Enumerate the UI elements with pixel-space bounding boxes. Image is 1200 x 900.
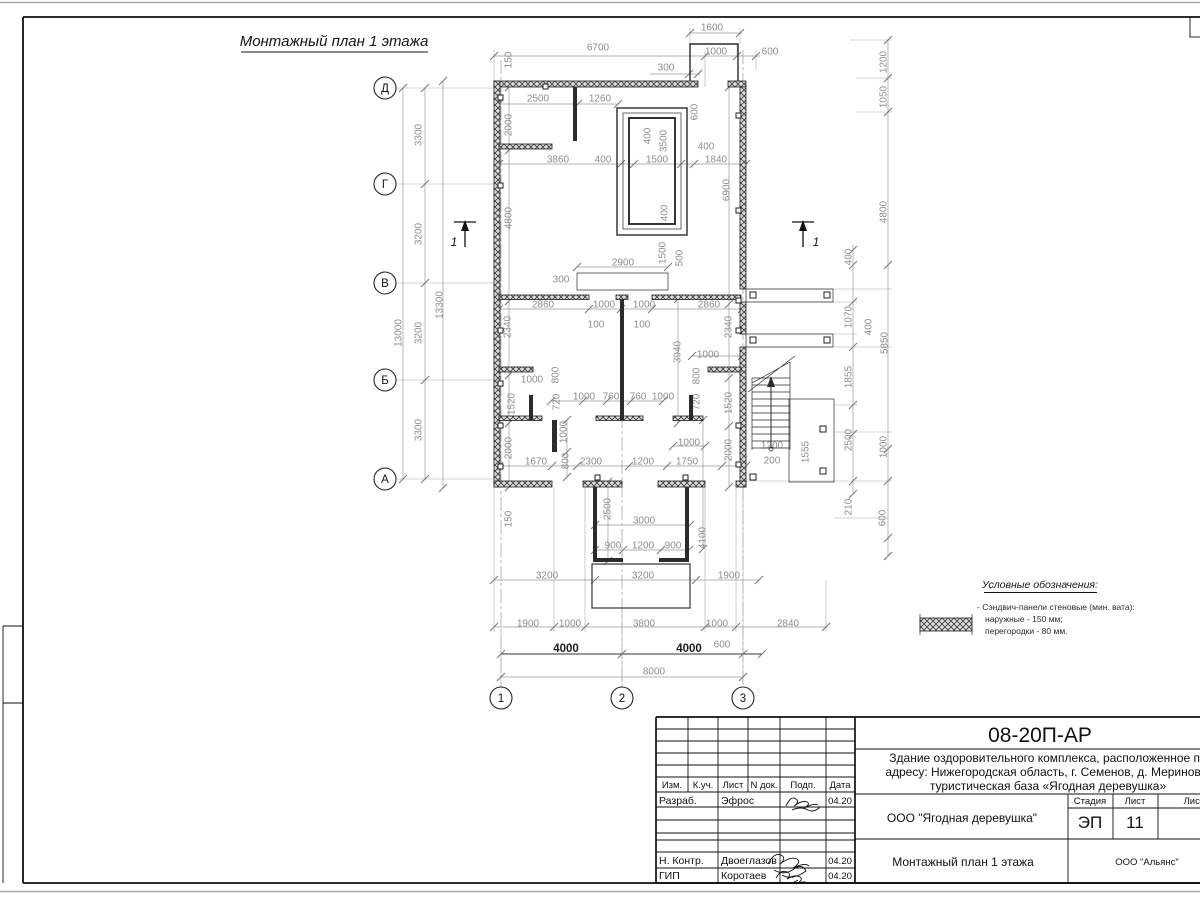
dimension-label: 13300 (435, 291, 446, 319)
axis-bubble-label: Б (381, 375, 389, 387)
dimension-label: 1000 (697, 350, 720, 361)
dimension-label: 1000 (559, 619, 582, 630)
dimension-label: 2340 (724, 315, 735, 338)
tb-stage-label: Стадия (1074, 796, 1106, 807)
axis-bubble-label: 2 (619, 693, 625, 705)
dimension-label: 1000 (559, 420, 570, 443)
axis-bubble-label: 1 (498, 693, 504, 705)
dimension-label: 1855 (844, 365, 855, 388)
dimension-label: 4000 (553, 643, 579, 655)
tb-sheet-label: Лист (1125, 796, 1146, 807)
legend-item-line1: - Сэндвич-панели стеновые (мин. вата): (977, 602, 1135, 612)
legend-item-line3: перегородки - 80 мм. (985, 626, 1068, 636)
title-block: Изм. К.уч. Лист N док. Подп. Дата Разраб… (656, 717, 1200, 884)
tb-col-list: Лист (723, 780, 744, 791)
dimension-label: 2300 (580, 457, 603, 468)
tb-project-line1: Здание оздоровительного комплекса, распо… (889, 751, 1200, 765)
dimension-label: 1000 (593, 300, 616, 311)
tb-sheet-number: 11 (1126, 813, 1144, 832)
legend-title: Условные обозначения: (981, 579, 1098, 591)
dimension-label: 1000 (706, 619, 729, 630)
dimension-label: 300 (553, 275, 570, 286)
axis-bubble-label: Г (382, 179, 389, 191)
dimension-label: 3800 (633, 619, 656, 630)
dimension-label: 720 (692, 393, 703, 410)
dimension-label: 760 (603, 392, 620, 403)
tb-col-kuch: К.уч. (693, 780, 714, 791)
exterior-beams (746, 289, 833, 347)
dimension-label: 1520 (507, 392, 518, 415)
dimension-label: 3940 (673, 340, 684, 363)
section-mark-left: 1 (451, 220, 476, 249)
tb-stage-value: ЭП (1078, 813, 1102, 832)
dimension-label: 400 (864, 318, 875, 335)
page-title: Монтажный план 1 этажа (240, 33, 429, 50)
dimension-label: 4000 (676, 643, 702, 655)
tb-col-ndok: N док. (750, 780, 777, 791)
dimension-label: 400 (660, 204, 671, 221)
dimension-label: 1900 (718, 571, 741, 582)
legend-item-line2: наружные - 150 мм; (985, 614, 1063, 624)
dimension-label: 200 (764, 456, 781, 467)
tb-project-line2: адресу: Нижегородская область, г. Семено… (885, 765, 1200, 779)
tb-project-line3: туристическая база «Ягодная деревушка» (930, 779, 1167, 793)
dimension-label: 2900 (612, 258, 635, 269)
dimension-label: 1000 (573, 392, 596, 403)
dimension-lines: 1600670010006003002500126015020006004003… (394, 23, 893, 682)
dimension-label: 300 (658, 63, 675, 74)
dimension-label: 1000 (678, 438, 701, 449)
dimension-label: 800 (551, 366, 562, 383)
tb-name-efros: Эфрос (721, 795, 754, 807)
dimension-label: 3200 (414, 321, 425, 344)
legend: Условные обозначения: - Сэндвич-панели с… (920, 579, 1135, 636)
dimension-label: 600 (714, 640, 731, 651)
legend-hatch-symbol (920, 618, 972, 631)
tb-client: ООО "Ягодная деревушка" (887, 811, 1037, 825)
dimension-label: 3200 (632, 571, 655, 582)
dimension-label: 400 (698, 142, 715, 153)
dimension-label: 800 (692, 367, 703, 384)
dimension-label: 2500 (527, 94, 550, 105)
dimension-label: 1200 (761, 441, 784, 452)
tb-date-nkontr: 04.20 (828, 856, 852, 867)
dimension-label: 6700 (587, 43, 610, 54)
tb-organization: ООО "Альянс" (1115, 857, 1179, 868)
dimension-label: 720 (552, 393, 563, 410)
dimension-label: 1070 (844, 305, 855, 328)
axis-grid (396, 28, 892, 687)
dimension-label: 1840 (705, 155, 728, 166)
dimension-label: 800 (561, 452, 572, 469)
axis-bubbles: ДГВБА123 (374, 77, 754, 709)
dimension-label: 13000 (394, 319, 405, 347)
dimension-label: 900 (665, 541, 682, 552)
dimension-label: 1200 (632, 541, 655, 552)
tb-date-gip: 04.20 (828, 871, 852, 882)
tb-name-dvoeglazov: Двоеглазов (721, 855, 777, 867)
axis-bubble-label: В (381, 278, 389, 290)
dimension-label: 4800 (504, 206, 515, 229)
dimension-label: 4100 (698, 526, 709, 549)
dimension-label: 1000 (879, 435, 890, 458)
tb-name-korotaev: Коротаев (721, 870, 767, 882)
dimension-label: 4800 (879, 200, 890, 223)
dimension-label: 3860 (547, 155, 570, 166)
architectural-drawing-sheet: Монтажный план 1 этажа 16006700100060030… (0, 0, 1200, 900)
dimension-label: 2340 (503, 315, 514, 338)
dimension-label: 3300 (414, 123, 425, 146)
stove-foundation (617, 108, 687, 235)
dimension-label: 2500 (603, 497, 614, 520)
tb-col-izm: Изм. (662, 780, 682, 791)
dimension-label: 2840 (777, 619, 800, 630)
tb-role-gip: ГИП (659, 870, 680, 882)
dimension-label: 1260 (589, 94, 612, 105)
section-label: 1 (813, 235, 820, 249)
dimension-label: 1000 (652, 392, 675, 403)
dimension-label: 2500 (844, 428, 855, 451)
axis-bubble-label: Д (381, 83, 389, 95)
dimension-label: 1200 (879, 50, 890, 73)
dimension-label: 1670 (525, 457, 548, 468)
dimension-label: 1050 (879, 85, 890, 108)
drawing-title: Монтажный план 1 этажа (240, 33, 429, 52)
dimension-label: 3300 (414, 418, 425, 441)
dimension-label: 1200 (632, 457, 655, 468)
tb-col-data: Дата (829, 780, 851, 791)
tb-date-razrab: 04.20 (828, 796, 852, 807)
dimension-label: 1555 (801, 440, 812, 463)
tb-sheet-title: Монтажный план 1 этажа (892, 855, 1034, 869)
dimension-label: 5850 (880, 331, 891, 354)
dimension-label: 3500 (659, 129, 670, 152)
dimension-label: 1600 (701, 23, 724, 34)
dimension-label: 1000 (521, 375, 544, 386)
dimension-label: 600 (690, 103, 701, 120)
tb-col-podp: Подп. (790, 780, 815, 791)
dimension-label: 2000 (504, 436, 515, 459)
tb-role-nkontr: Н. Контр. (659, 855, 704, 867)
signatures (768, 798, 820, 884)
staircase (748, 356, 795, 451)
dimension-label: 1000 (633, 300, 656, 311)
tb-role-razrab: Разраб. (659, 795, 697, 807)
dimension-label: 500 (675, 249, 686, 266)
dimension-label: 400 (595, 155, 612, 166)
dimension-label: 8000 (643, 667, 666, 678)
dimension-label: 400 (643, 127, 654, 144)
dimension-label: 3200 (414, 222, 425, 245)
tb-document-code: 08-20П-АР (988, 724, 1092, 747)
dimension-label: 1900 (517, 619, 540, 630)
section-mark-right: 1 (792, 220, 819, 249)
dimension-label: 3000 (633, 516, 656, 527)
dimension-label: 900 (605, 541, 622, 552)
dimension-label: 2860 (698, 300, 721, 311)
dimension-label: 760 (630, 392, 647, 403)
dimension-label: 6900 (722, 178, 733, 201)
dimension-label: 2860 (532, 300, 555, 311)
lintel-beam (577, 273, 668, 290)
dimension-label: 2000 (724, 438, 735, 461)
section-label: 1 (451, 235, 458, 249)
dimension-label: 400 (844, 248, 855, 265)
dimension-label: 1520 (724, 391, 735, 414)
dimension-label: 1500 (646, 155, 669, 166)
dimension-label: 600 (878, 509, 889, 526)
dimension-label: 1000 (705, 47, 728, 58)
dimension-label: 600 (762, 47, 779, 58)
dimension-label: 3200 (536, 571, 559, 582)
dimension-label: 150 (504, 51, 515, 68)
axis-bubble-label: А (381, 474, 389, 486)
dimension-label: 100 (588, 320, 605, 331)
dimension-label: 1750 (676, 457, 699, 468)
dimension-label: 2000 (504, 113, 515, 136)
dimension-label: 150 (504, 510, 515, 527)
tb-sheets-label: Листов (1184, 796, 1200, 807)
dimension-label: 1500 (658, 241, 669, 264)
axis-bubble-label: 3 (740, 693, 746, 705)
dimension-label: 100 (634, 320, 651, 331)
dimension-label: 210 (844, 498, 855, 515)
